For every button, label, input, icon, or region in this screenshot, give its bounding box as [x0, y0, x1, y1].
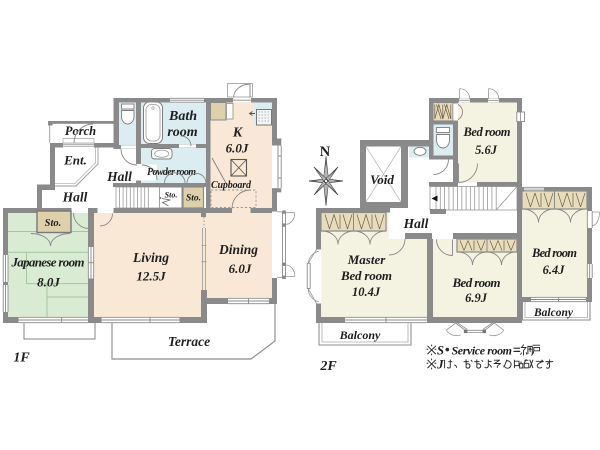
- svg-text:Living: Living: [132, 250, 169, 265]
- svg-text:K: K: [232, 126, 244, 141]
- svg-text:Sto.: Sto.: [186, 194, 201, 204]
- svg-text:Void: Void: [370, 172, 394, 187]
- svg-text:6.0J: 6.0J: [229, 261, 252, 276]
- svg-text:Terrace: Terrace: [168, 334, 210, 349]
- svg-text:Bed room: Bed room: [452, 275, 501, 290]
- svg-text:8.0J: 8.0J: [37, 275, 60, 290]
- svg-text:Master: Master: [347, 252, 387, 267]
- svg-text:Cupboard: Cupboard: [211, 180, 252, 191]
- svg-text:2F: 2F: [319, 359, 337, 374]
- svg-text:Dining: Dining: [218, 242, 258, 257]
- svg-text:N: N: [320, 144, 331, 160]
- svg-text:J: J: [436, 357, 444, 371]
- svg-text:5.6J: 5.6J: [475, 143, 498, 157]
- svg-text:Bed room: Bed room: [463, 125, 511, 139]
- svg-text:Service room: Service room: [452, 344, 513, 358]
- svg-text:Bed room: Bed room: [531, 246, 577, 260]
- svg-text:Porch: Porch: [65, 124, 96, 138]
- svg-text:Balcony: Balcony: [533, 307, 574, 319]
- svg-text:Balcony: Balcony: [339, 328, 381, 342]
- svg-text:6.9J: 6.9J: [465, 291, 488, 305]
- svg-text:Powder room: Powder room: [147, 167, 196, 178]
- svg-text:10.4J: 10.4J: [352, 285, 381, 299]
- svg-text:room: room: [167, 125, 197, 140]
- svg-text:Sto.: Sto.: [165, 191, 178, 200]
- svg-text:1F: 1F: [13, 351, 30, 366]
- svg-text:Bed room: Bed room: [340, 268, 392, 283]
- svg-text:Hall: Hall: [106, 169, 132, 184]
- svg-text:Japanese room: Japanese room: [11, 255, 85, 270]
- svg-text:12.5J: 12.5J: [136, 269, 166, 284]
- svg-text:Bath: Bath: [168, 109, 197, 124]
- svg-text:Ent.: Ent.: [63, 153, 87, 168]
- svg-text:Hall: Hall: [62, 190, 88, 205]
- svg-text:Hall: Hall: [403, 216, 429, 231]
- svg-text:S: S: [437, 344, 444, 358]
- svg-text:Sto.: Sto.: [45, 218, 62, 229]
- svg-text:6.4J: 6.4J: [543, 263, 566, 277]
- svg-text:6.0J: 6.0J: [226, 141, 249, 156]
